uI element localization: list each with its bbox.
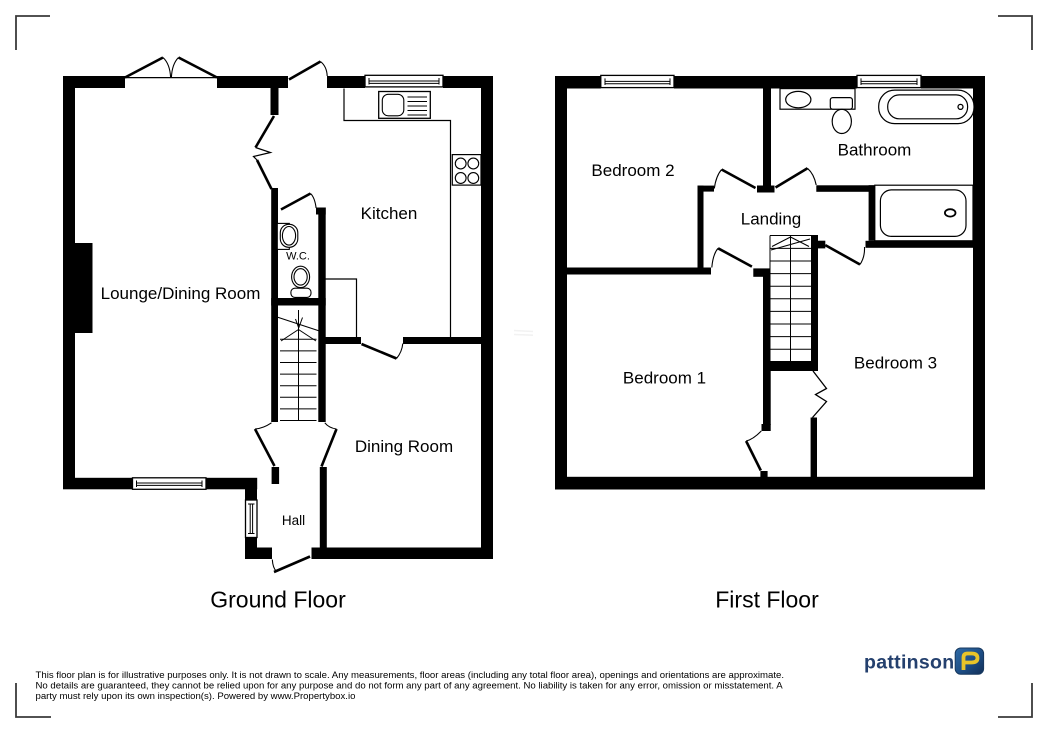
svg-text:Bedroom 3: Bedroom 3 (854, 354, 937, 373)
svg-text:Dining Room: Dining Room (355, 437, 453, 456)
svg-text:This floor plan is for illustr: This floor plan is for illustrative purp… (36, 670, 785, 681)
svg-text:No details are guaranteed, the: No details are guaranteed, they cannot b… (36, 681, 784, 692)
svg-text:party must rely upon its own i: party must rely upon its own inspection(… (36, 691, 356, 702)
svg-text:Landing: Landing (741, 210, 802, 229)
svg-text:Kitchen: Kitchen (361, 204, 418, 223)
svg-text:Bedroom 2: Bedroom 2 (591, 161, 674, 180)
svg-text:pattinson: pattinson (864, 652, 954, 674)
svg-text:Hall: Hall (282, 513, 305, 528)
svg-text:First Floor: First Floor (715, 587, 819, 613)
svg-text:W.C.: W.C. (286, 251, 310, 263)
svg-text:Bathroom: Bathroom (838, 141, 912, 160)
svg-text:Bedroom 1: Bedroom 1 (623, 369, 706, 388)
svg-text:Ground Floor: Ground Floor (210, 587, 346, 613)
svg-text:Lounge/Dining Room: Lounge/Dining Room (101, 284, 261, 303)
